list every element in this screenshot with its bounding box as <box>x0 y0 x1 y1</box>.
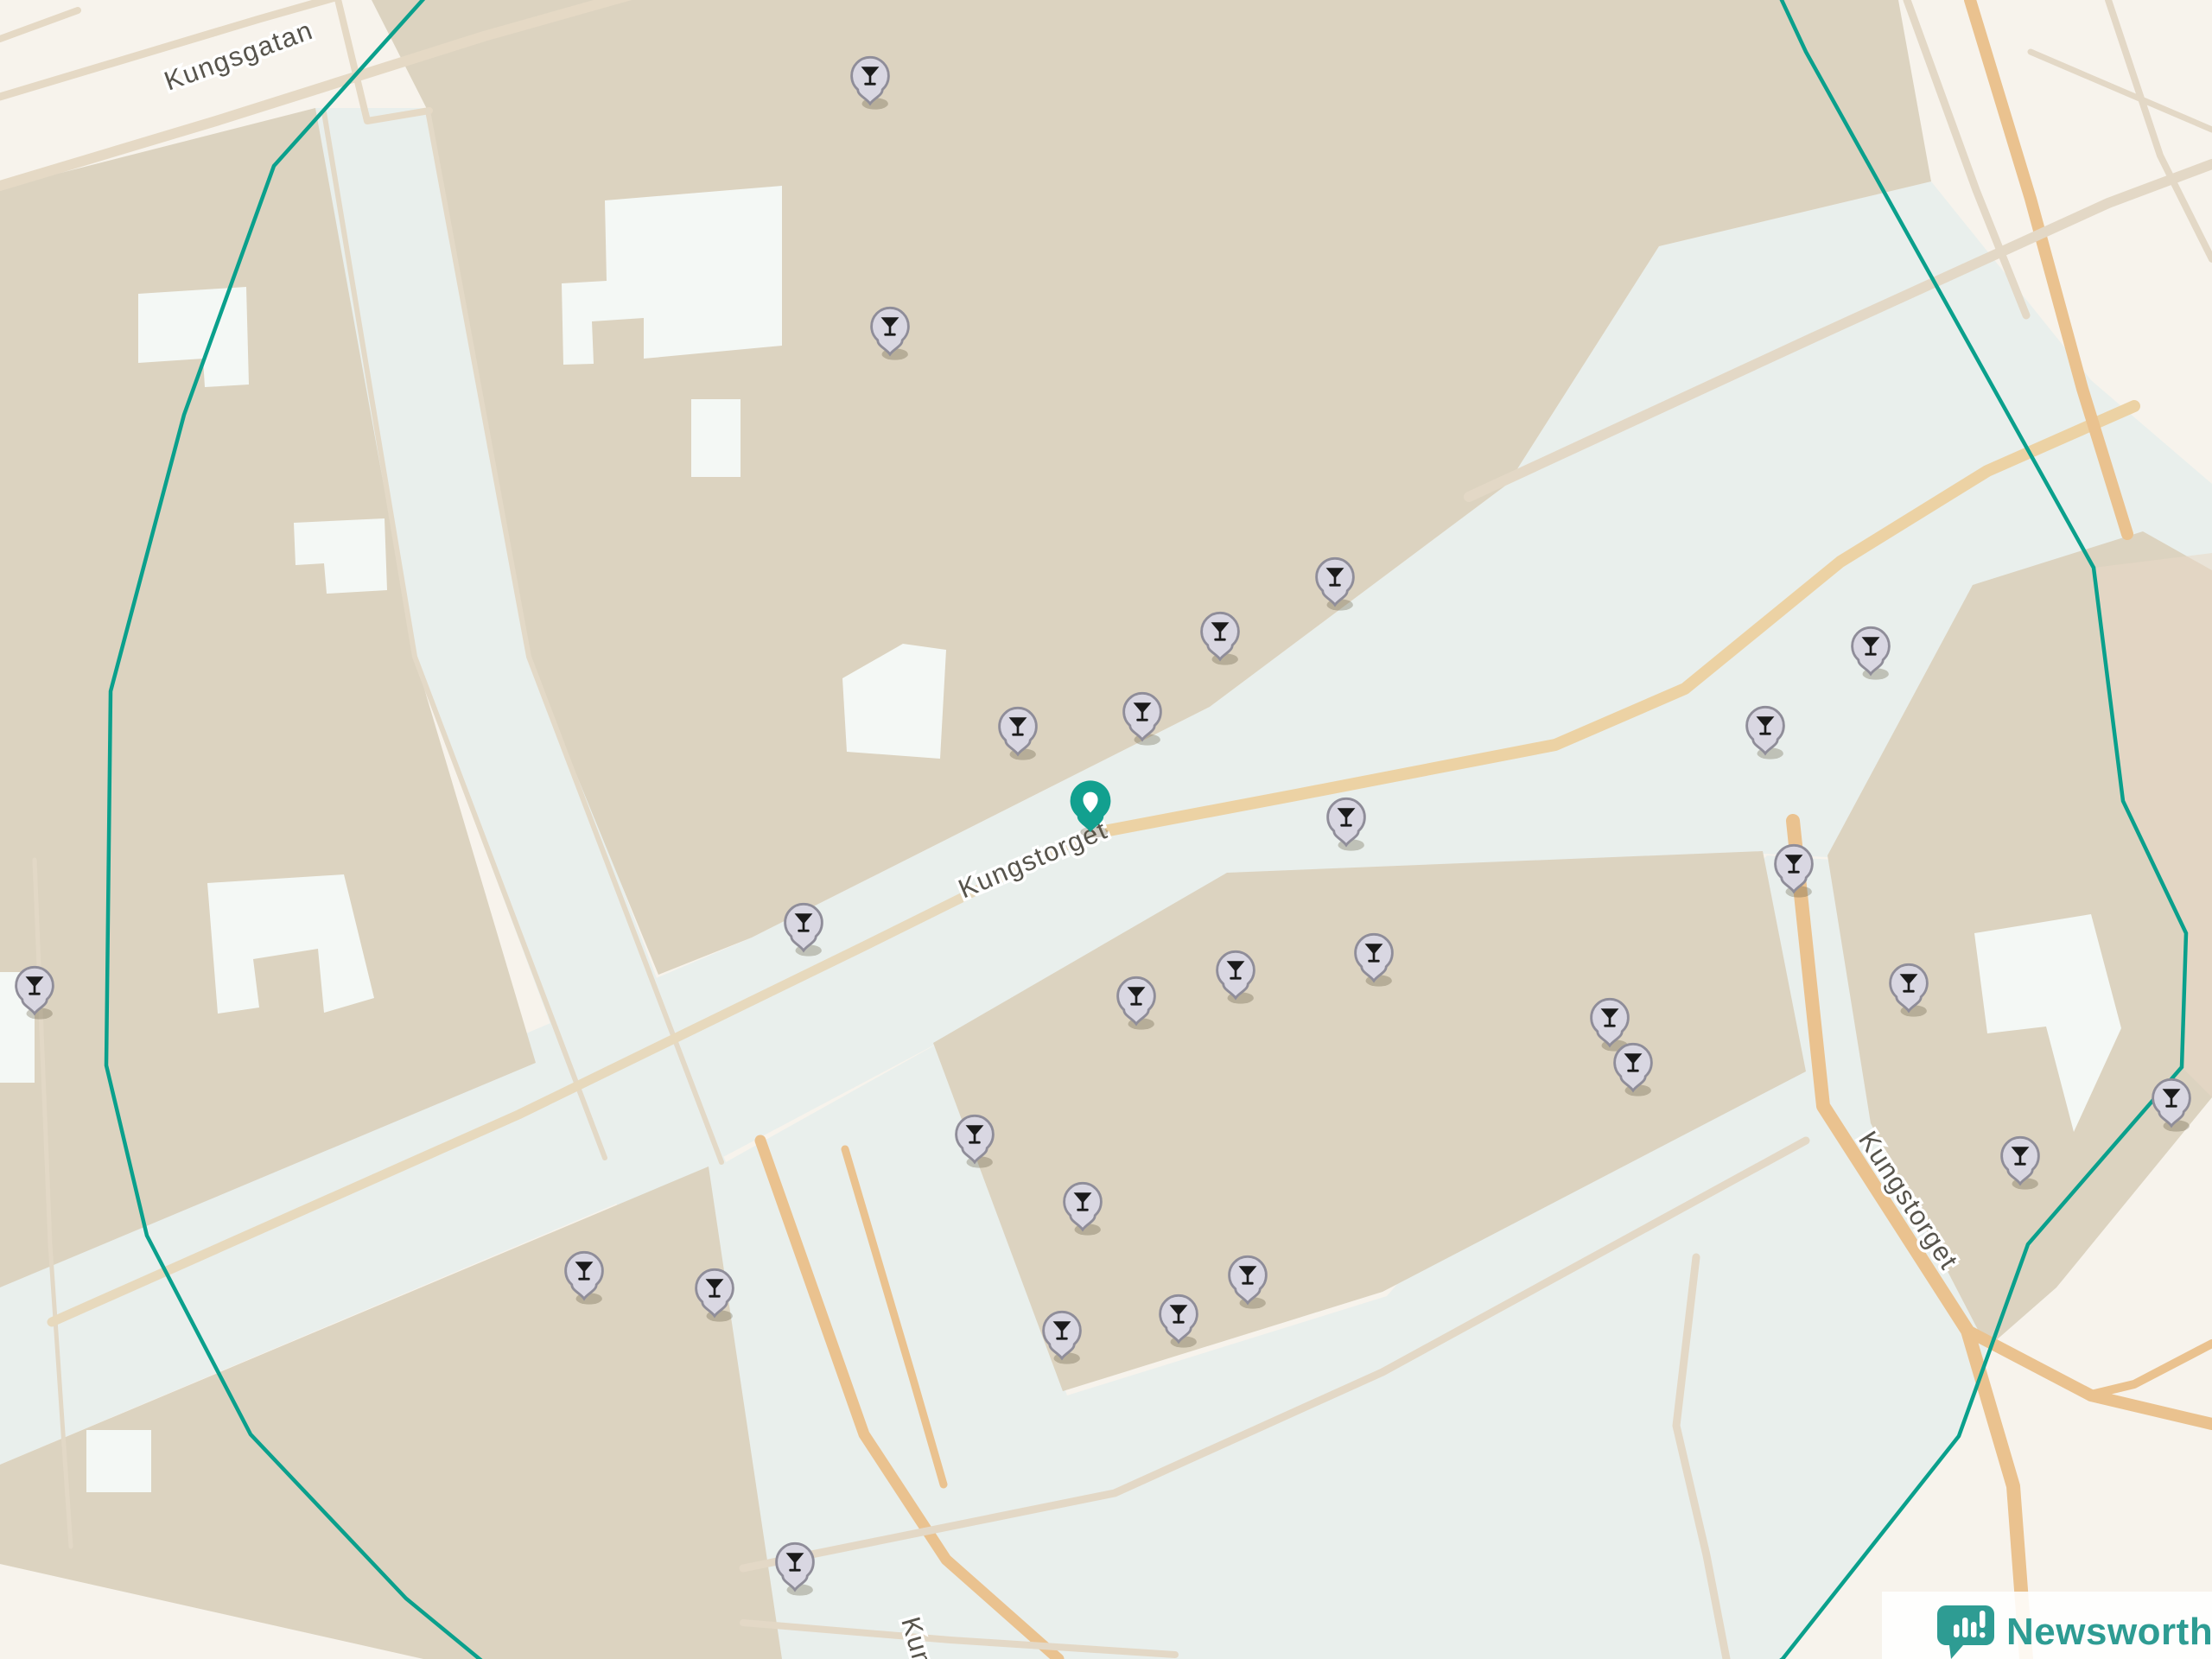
map-canvas[interactable]: Kungsgatan Kungstorget Kungstorget Kungs… <box>0 0 2212 1659</box>
newsworthy-logo-text: Newsworthy <box>2006 1611 2212 1653</box>
building-small-north <box>691 399 741 477</box>
building-sw-small <box>86 1430 151 1492</box>
attribution: Newsworthy <box>1882 1592 2212 1659</box>
